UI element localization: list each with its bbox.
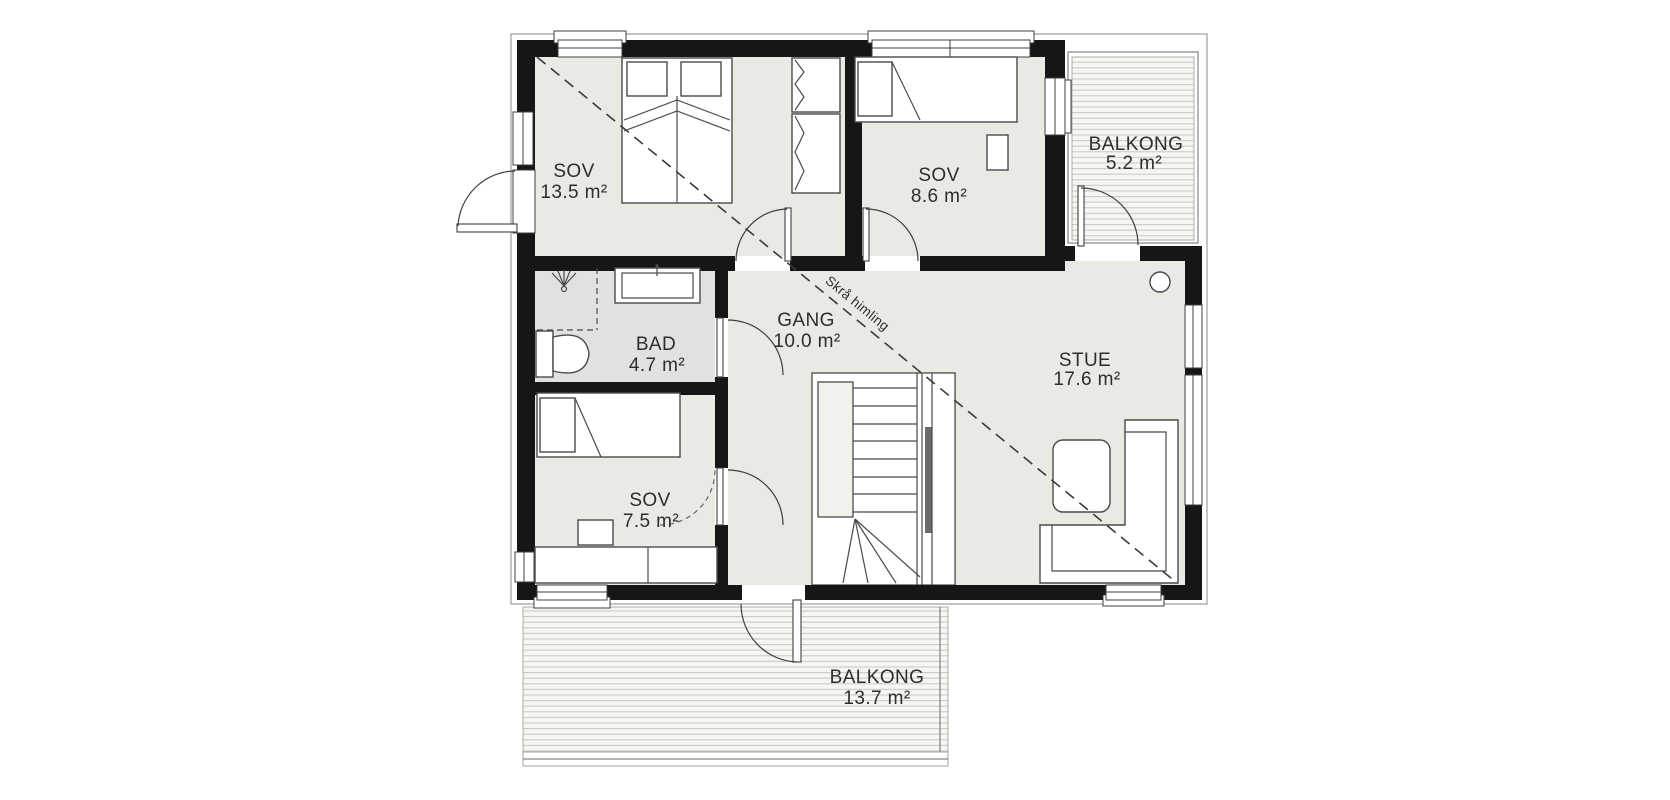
door-exterior-left [457, 170, 535, 233]
toilet-cistern [536, 331, 553, 377]
staircase [812, 373, 955, 585]
wall-gang-vertical [715, 256, 728, 585]
window-sov1-top [554, 31, 626, 57]
coffee-table [1053, 440, 1110, 512]
wall-bottom [517, 585, 1202, 600]
label-sov1-name: SOV [553, 161, 594, 182]
bed-pillow [540, 398, 575, 452]
bench [535, 547, 717, 583]
bed-pillow [858, 62, 892, 116]
floor-plan-canvas: Skrå himling SOV 13.5 m² SOV 8.6 m² BALK… [0, 0, 1670, 800]
label-sov1-area: 13.5 m² [540, 182, 607, 203]
label-sov2-name: SOV [918, 165, 959, 186]
label-balkong-bottom-name: BALKONG [830, 667, 925, 688]
window-stue-bottom [1103, 585, 1164, 606]
window-sov3-bottom [534, 585, 610, 608]
label-sov2-area: 8.6 m² [911, 186, 967, 207]
label-sov3-name: SOV [629, 490, 670, 511]
desk [578, 520, 613, 545]
label-sov3-area: 7.5 m² [623, 511, 679, 532]
label-balkong-bottom-area: 13.7 m² [843, 688, 910, 709]
label-stue-name: STUE [1059, 350, 1111, 371]
stair-lower-flight [818, 382, 853, 517]
sink-faucet-dot [655, 264, 659, 268]
window-sov2-top [868, 31, 1034, 57]
window-left-lower [515, 552, 534, 582]
wall-right-bedroom [1045, 40, 1065, 261]
label-stue-area: 17.6 m² [1053, 369, 1120, 390]
desk [987, 135, 1008, 170]
label-bad-area: 4.7 m² [629, 355, 685, 376]
stair-partition [932, 373, 955, 585]
floor-plan-drawing: Skrå himling SOV 13.5 m² SOV 8.6 m² BALK… [0, 0, 1670, 800]
label-balkong-top-area: 5.2 m² [1106, 153, 1162, 174]
chimney-flue [1150, 272, 1170, 292]
label-gang-name: GANG [777, 310, 835, 331]
bed-pillow-right [681, 62, 721, 96]
label-gang-area: 10.0 m² [773, 331, 840, 352]
toilet-bowl [553, 335, 589, 373]
stair-handrail [925, 427, 932, 533]
window-sov2-balcony [1045, 78, 1071, 135]
window-stue-right-upper [1185, 305, 1202, 368]
furniture-sov1 [622, 58, 840, 203]
label-balkong-top-name: BALKONG [1089, 134, 1184, 155]
label-bad-name: BAD [636, 334, 676, 355]
window-stue-right-lower [1185, 375, 1202, 505]
window-left-upper [513, 112, 533, 165]
bed-pillow-left [627, 62, 667, 96]
